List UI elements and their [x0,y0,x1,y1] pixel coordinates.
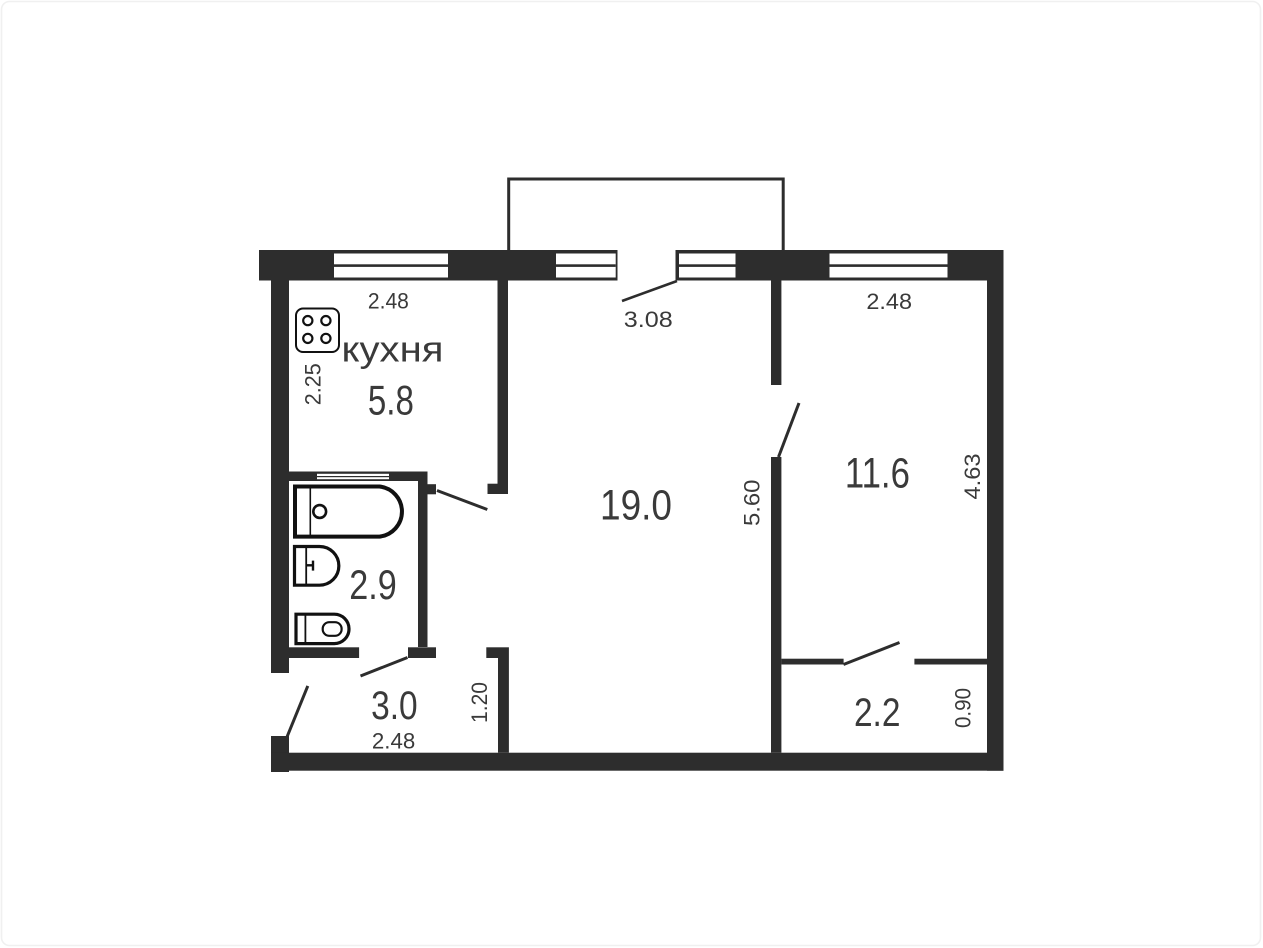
svg-text:2.25: 2.25 [301,363,326,405]
svg-text:2.9: 2.9 [349,561,397,608]
svg-text:кухня: кухня [342,328,444,369]
svg-text:2.48: 2.48 [372,728,415,753]
svg-text:5.8: 5.8 [368,377,414,424]
svg-text:4.63: 4.63 [960,454,985,500]
svg-text:2.48: 2.48 [368,288,409,313]
svg-text:2.48: 2.48 [866,289,912,314]
svg-text:5.60: 5.60 [739,480,764,527]
svg-text:11.6: 11.6 [845,449,910,497]
svg-text:2.2: 2.2 [854,691,901,735]
svg-text:0.90: 0.90 [951,688,976,728]
svg-text:1.20: 1.20 [467,682,492,723]
svg-text:3.0: 3.0 [371,684,418,728]
svg-text:19.0: 19.0 [600,482,672,530]
svg-text:3.08: 3.08 [624,307,673,332]
